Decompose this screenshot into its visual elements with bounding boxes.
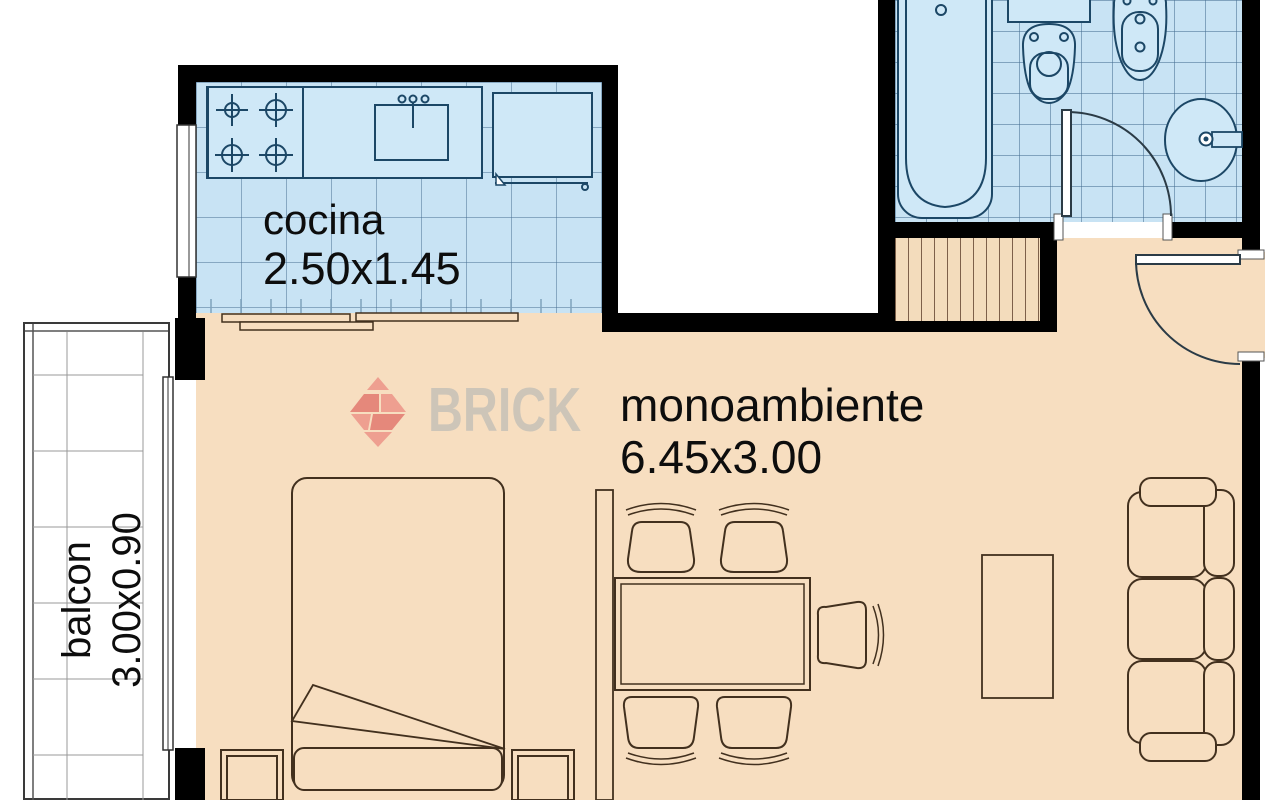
balcony-dimensions: 3.00x0.90 [102,512,152,688]
brick-watermark: BRICK [350,372,624,452]
room-bathroom-floor [895,0,1242,222]
studio-label: monoambiente [620,378,924,432]
wall-kitchen-top [178,65,618,82]
closet-floor [895,237,1040,321]
balcony-label-block: balcon 3.00x0.90 [52,440,152,760]
entry-hall-floor [1057,238,1242,313]
wall-pillar-balcony-top [175,318,205,380]
balcony-label: balcon [52,541,102,659]
wall-kitchen-right [602,65,618,330]
studio-dimensions: 6.45x3.00 [620,430,822,484]
entrance-threshold [1242,252,1265,358]
wall-closet-right [1040,222,1057,332]
wall-kitchen-left-upper [178,65,196,125]
wall-right-upper [1242,0,1260,252]
brick-logo-text: BRICK [428,380,581,442]
wall-closet-bottom [895,321,1057,332]
kitchen-dimensions: 2.50x1.45 [263,243,461,295]
wall-bathroom-left [878,0,895,332]
wall-pillar-balcony-bottom [175,748,205,800]
wall-right-lower [1242,358,1260,800]
kitchen-label: cocina [263,196,384,244]
wall-void-bottom [602,313,895,332]
wall-bathroom-bottom-left [878,222,1062,238]
brick-gem-icon [350,372,414,452]
floor-plan: BRICK [0,0,1280,800]
kitchen-window [177,125,196,277]
